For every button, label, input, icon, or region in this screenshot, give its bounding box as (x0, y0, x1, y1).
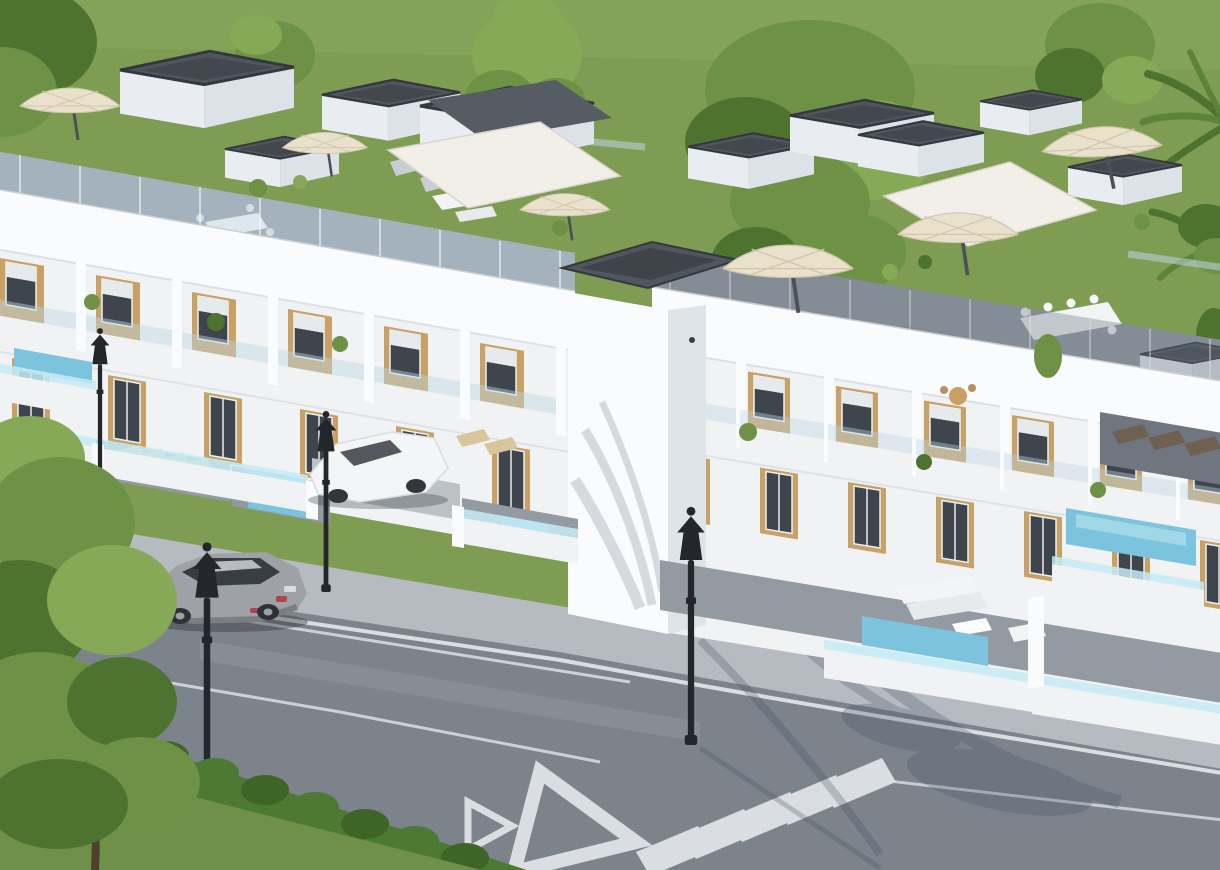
roof-plant (1134, 214, 1150, 230)
balcony-plant (1090, 482, 1106, 498)
wheel-rim (176, 613, 185, 620)
wall-sconce (689, 337, 695, 343)
tree-canopy (47, 545, 177, 655)
balcony-plant (207, 313, 225, 331)
roof-plant (882, 264, 898, 280)
car-wheel (406, 479, 426, 493)
tree-canopy (67, 657, 177, 747)
hedge-blob (341, 809, 389, 839)
tree-canopy (230, 15, 282, 55)
hedge-blob (291, 792, 339, 822)
balcony-plant (739, 423, 757, 441)
wall-separator (452, 505, 464, 548)
taillight (276, 596, 287, 602)
roof-plant (918, 255, 932, 269)
roof-chair (1044, 303, 1053, 312)
balcony-plant (332, 336, 348, 352)
roof-plant (293, 175, 307, 189)
hedge-blob (241, 775, 289, 805)
wheel-rim (264, 609, 273, 616)
tree-canopy (1102, 56, 1162, 104)
roof-chair (1090, 295, 1099, 304)
terrace-tall-plant (1034, 334, 1062, 378)
roof-plant (249, 179, 267, 197)
wall-separator (1028, 595, 1044, 689)
balcony-plant (84, 294, 100, 310)
round-table (949, 387, 967, 405)
tower-front-face (568, 292, 668, 634)
balcony-plant (916, 454, 932, 470)
car-wheel (328, 489, 348, 503)
license-plate (284, 586, 296, 592)
chair (940, 386, 948, 394)
roof-chair (1067, 299, 1076, 308)
roof-plant (552, 220, 568, 236)
render-canvas (0, 0, 1220, 870)
scene-svg (0, 0, 1220, 870)
chair (968, 384, 976, 392)
